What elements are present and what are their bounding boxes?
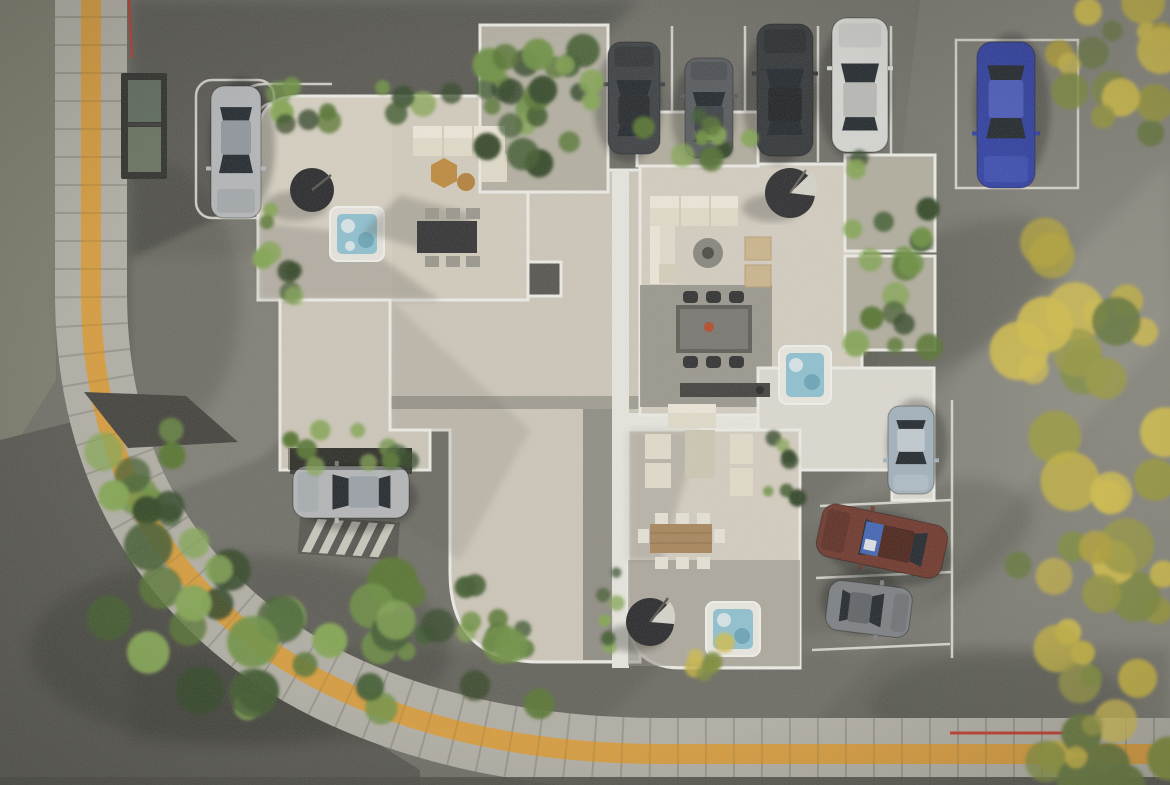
aerial-render bbox=[0, 0, 1170, 785]
vignette bbox=[0, 0, 1170, 785]
aerial-render-stage bbox=[0, 0, 1170, 785]
